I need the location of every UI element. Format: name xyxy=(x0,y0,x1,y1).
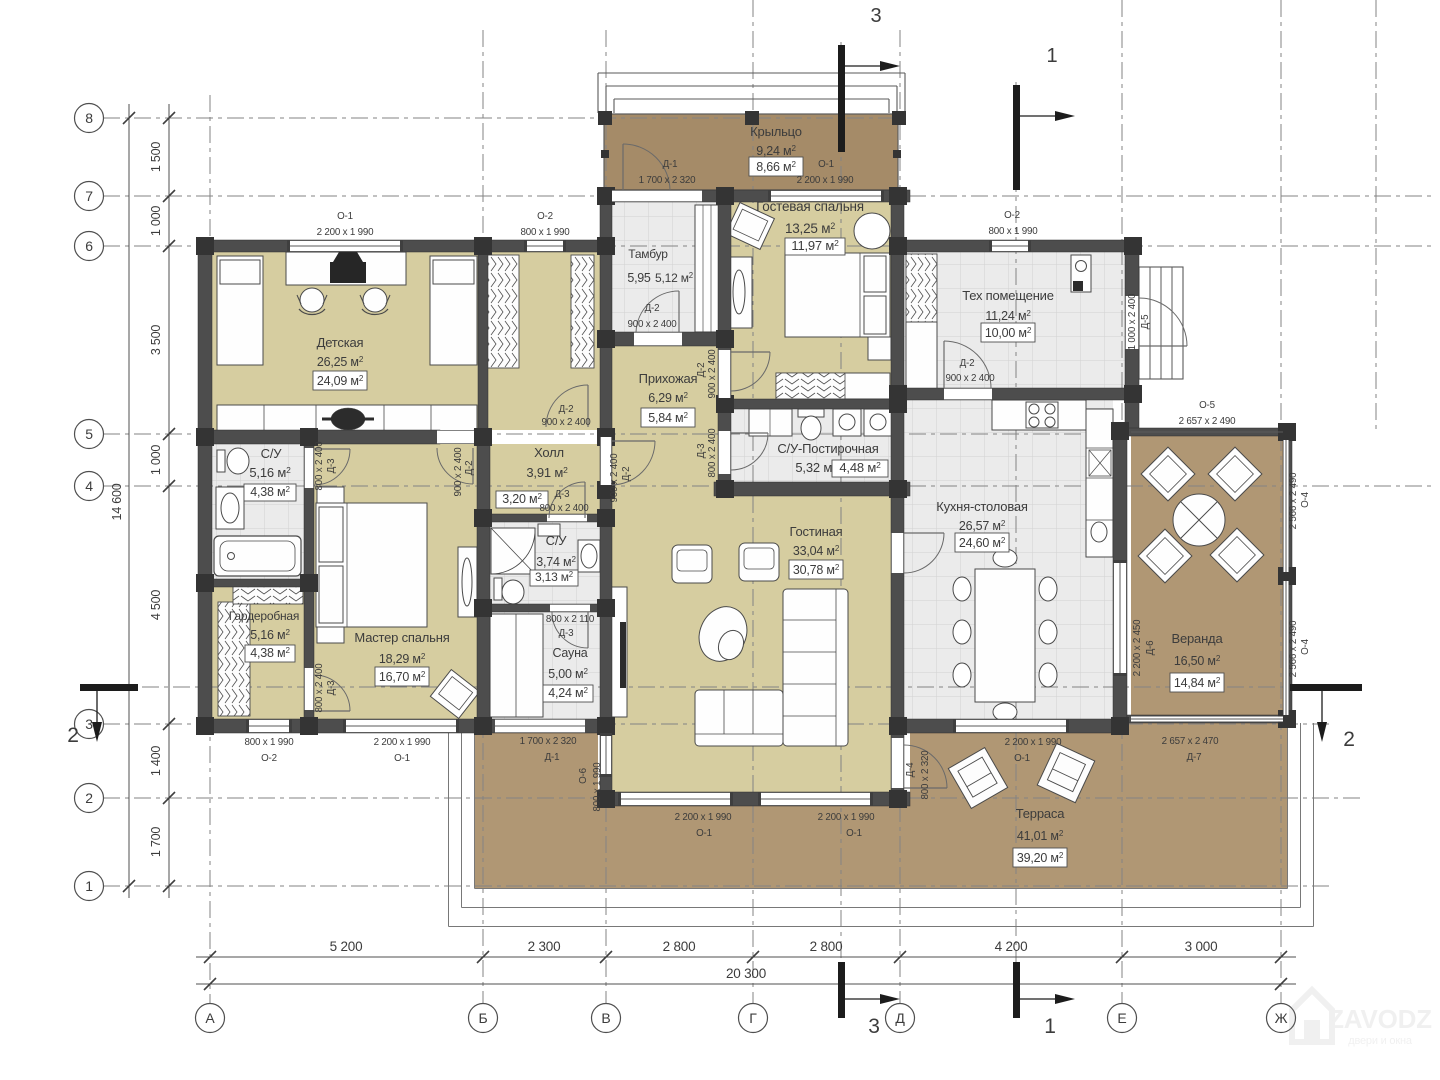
svg-text:800 x 2 400: 800 x 2 400 xyxy=(539,503,589,514)
svg-text:Д-6: Д-6 xyxy=(1145,640,1156,655)
svg-text:2 657 x 2 470: 2 657 x 2 470 xyxy=(1162,736,1220,747)
svg-text:800 x 2 400: 800 x 2 400 xyxy=(707,428,718,478)
svg-text:Д-4: Д-4 xyxy=(905,762,916,777)
svg-text:5,32 м2: 5,32 м2 xyxy=(795,460,837,475)
svg-text:3,74 м2: 3,74 м2 xyxy=(536,555,576,569)
svg-text:2 657 x 2 490: 2 657 x 2 490 xyxy=(1179,416,1237,427)
svg-text:3: 3 xyxy=(871,5,882,27)
svg-text:двери и окна: двери и окна xyxy=(1348,1035,1413,1047)
svg-text:Гостиная: Гостиная xyxy=(790,524,843,539)
svg-text:3 000: 3 000 xyxy=(1185,939,1218,954)
svg-text:900 x 2 400: 900 x 2 400 xyxy=(609,453,620,503)
svg-text:900 x 2 400: 900 x 2 400 xyxy=(627,319,677,330)
svg-text:6,29 м2: 6,29 м2 xyxy=(648,391,688,405)
svg-text:Мастер спальня: Мастер спальня xyxy=(354,630,449,645)
svg-text:Тамбур: Тамбур xyxy=(628,247,668,261)
svg-text:О-6: О-6 xyxy=(578,767,589,783)
svg-text:Д-2: Д-2 xyxy=(464,461,475,476)
svg-text:О-4: О-4 xyxy=(1300,491,1311,507)
svg-text:30,78 м2: 30,78 м2 xyxy=(793,563,840,577)
svg-text:С/У: С/У xyxy=(261,446,283,461)
svg-text:1 400: 1 400 xyxy=(149,746,163,777)
svg-text:Д-3: Д-3 xyxy=(555,489,570,500)
svg-text:Д-2: Д-2 xyxy=(621,467,632,482)
svg-text:1 700 x 2 320: 1 700 x 2 320 xyxy=(520,736,578,747)
svg-text:Д-2: Д-2 xyxy=(559,404,574,415)
svg-text:5,00 м2: 5,00 м2 xyxy=(548,667,588,681)
svg-text:4,24 м2: 4,24 м2 xyxy=(548,686,588,700)
svg-text:2 200 x 1 990: 2 200 x 1 990 xyxy=(1005,737,1063,748)
svg-text:1 700: 1 700 xyxy=(149,827,163,858)
svg-text:Д-3: Д-3 xyxy=(559,628,574,639)
svg-text:4 200: 4 200 xyxy=(995,939,1028,954)
svg-text:8,66 м2: 8,66 м2 xyxy=(756,160,796,174)
svg-text:5 200: 5 200 xyxy=(330,939,363,954)
svg-text:20 300: 20 300 xyxy=(726,966,766,981)
svg-text:Г: Г xyxy=(749,1010,757,1026)
svg-text:2 800: 2 800 xyxy=(663,939,696,954)
svg-text:Д-1: Д-1 xyxy=(545,752,560,763)
svg-text:2 566 x 2 490: 2 566 x 2 490 xyxy=(1288,472,1299,530)
svg-text:Кухня-столовая: Кухня-столовая xyxy=(936,499,1028,514)
svg-text:Гостевая спальня: Гостевая спальня xyxy=(756,199,864,214)
svg-text:800 x 1 990: 800 x 1 990 xyxy=(988,226,1038,237)
svg-text:4,48 м2: 4,48 м2 xyxy=(839,460,881,475)
svg-text:3,13 м2: 3,13 м2 xyxy=(535,570,573,584)
svg-text:800 x 1 990: 800 x 1 990 xyxy=(592,762,603,812)
svg-text:Прихожая: Прихожая xyxy=(639,371,698,386)
svg-text:41,01 м2: 41,01 м2 xyxy=(1017,829,1064,843)
svg-text:2 300: 2 300 xyxy=(528,939,561,954)
svg-text:24,60 м2: 24,60 м2 xyxy=(959,536,1006,550)
svg-text:5,16 м2: 5,16 м2 xyxy=(250,628,290,642)
svg-text:Д-3: Д-3 xyxy=(326,680,337,695)
svg-text:Д-2: Д-2 xyxy=(960,358,975,369)
svg-text:Тех помещение: Тех помещение xyxy=(962,288,1054,303)
svg-text:8: 8 xyxy=(85,110,93,126)
svg-text:5,16 м2: 5,16 м2 xyxy=(249,465,291,480)
svg-text:26,57 м2: 26,57 м2 xyxy=(959,519,1006,533)
svg-text:1: 1 xyxy=(1047,45,1058,67)
svg-text:С/У: С/У xyxy=(546,533,568,548)
svg-text:14 600: 14 600 xyxy=(110,483,124,520)
svg-text:24,09 м2: 24,09 м2 xyxy=(317,374,364,388)
svg-text:5,95: 5,95 xyxy=(627,271,650,285)
svg-text:33,04 м2: 33,04 м2 xyxy=(793,544,840,558)
svg-text:1: 1 xyxy=(1044,1015,1055,1038)
svg-text:Д-2: Д-2 xyxy=(645,303,660,314)
svg-text:16,50 м2: 16,50 м2 xyxy=(1174,654,1221,668)
svg-text:800 x 2 320: 800 x 2 320 xyxy=(920,750,931,800)
svg-text:Веранда: Веранда xyxy=(1172,631,1224,646)
svg-text:2: 2 xyxy=(1343,728,1354,751)
svg-text:А: А xyxy=(205,1010,215,1026)
svg-text:16,70 м2: 16,70 м2 xyxy=(379,670,426,684)
svg-text:Д-1: Д-1 xyxy=(663,159,678,170)
svg-text:39,20 м2: 39,20 м2 xyxy=(1017,851,1064,865)
svg-text:4: 4 xyxy=(85,478,93,494)
svg-text:2 200 x 1 990: 2 200 x 1 990 xyxy=(675,812,733,823)
svg-text:О-4: О-4 xyxy=(1300,638,1311,654)
svg-text:Холл: Холл xyxy=(534,445,564,460)
svg-text:800 x 1 990: 800 x 1 990 xyxy=(244,737,294,748)
svg-text:О-1: О-1 xyxy=(1014,753,1030,764)
svg-text:2 566 x 2 490: 2 566 x 2 490 xyxy=(1288,620,1299,678)
svg-text:Д-7: Д-7 xyxy=(1187,752,1202,763)
svg-text:1 500: 1 500 xyxy=(149,142,163,173)
svg-text:О-5: О-5 xyxy=(1199,400,1215,411)
svg-text:О-2: О-2 xyxy=(261,753,277,764)
svg-text:Д-5: Д-5 xyxy=(1140,314,1151,329)
svg-text:О-1: О-1 xyxy=(818,159,834,170)
svg-text:2 200 x 1 990: 2 200 x 1 990 xyxy=(818,812,876,823)
svg-text:800 x 1 990: 800 x 1 990 xyxy=(520,227,570,238)
svg-text:О-1: О-1 xyxy=(696,828,712,839)
svg-text:С/У-Постирочная: С/У-Постирочная xyxy=(777,441,878,456)
svg-text:О-1: О-1 xyxy=(846,828,862,839)
svg-text:2: 2 xyxy=(67,724,78,747)
svg-text:11,97 м2: 11,97 м2 xyxy=(791,238,839,253)
svg-text:900 x 2 400: 900 x 2 400 xyxy=(945,373,995,384)
svg-text:10,00 м2: 10,00 м2 xyxy=(985,326,1032,340)
svg-text:4,38 м2: 4,38 м2 xyxy=(250,485,290,499)
svg-text:3 500: 3 500 xyxy=(149,325,163,356)
svg-text:900 x 2 400: 900 x 2 400 xyxy=(707,349,718,399)
svg-text:6: 6 xyxy=(85,238,93,254)
svg-text:9,24 м2: 9,24 м2 xyxy=(756,144,796,158)
svg-text:5,84 м2: 5,84 м2 xyxy=(648,411,688,425)
svg-text:13,25 м2: 13,25 м2 xyxy=(785,221,835,236)
svg-text:5: 5 xyxy=(85,426,93,442)
svg-text:2 200 x 2 450: 2 200 x 2 450 xyxy=(1132,619,1143,677)
svg-text:18,29 м2: 18,29 м2 xyxy=(379,652,426,666)
svg-text:7: 7 xyxy=(85,188,93,204)
svg-text:О-1: О-1 xyxy=(394,753,410,764)
svg-text:4,38 м2: 4,38 м2 xyxy=(250,646,290,660)
svg-text:Терраса: Терраса xyxy=(1016,806,1065,821)
svg-text:800 x 2 110: 800 x 2 110 xyxy=(546,614,595,625)
svg-text:4 500: 4 500 xyxy=(149,590,163,621)
svg-text:1 700 x 2 320: 1 700 x 2 320 xyxy=(639,175,697,186)
svg-text:2 200 x 1 990: 2 200 x 1 990 xyxy=(797,175,855,186)
svg-text:5,12 м2: 5,12 м2 xyxy=(655,271,693,285)
svg-text:3,91 м2: 3,91 м2 xyxy=(526,465,568,480)
svg-text:3: 3 xyxy=(85,716,93,732)
svg-text:1: 1 xyxy=(85,878,93,894)
svg-text:2 800: 2 800 xyxy=(810,939,843,954)
svg-text:Детская: Детская xyxy=(317,335,364,350)
svg-text:2 200 x 1 990: 2 200 x 1 990 xyxy=(317,227,375,238)
svg-text:3,20 м2: 3,20 м2 xyxy=(502,492,542,506)
svg-text:Е: Е xyxy=(1117,1010,1126,1026)
svg-text:1 000: 1 000 xyxy=(149,445,163,476)
svg-text:ZAVODZ: ZAVODZ xyxy=(1328,1004,1432,1034)
svg-text:Д: Д xyxy=(895,1010,905,1026)
svg-text:800 x 2 400: 800 x 2 400 xyxy=(314,441,325,491)
svg-text:О-1: О-1 xyxy=(337,211,353,222)
svg-text:2: 2 xyxy=(85,790,93,806)
svg-text:О-2: О-2 xyxy=(537,211,553,222)
svg-text:Б: Б xyxy=(479,1010,488,1026)
svg-text:Крыльцо: Крыльцо xyxy=(750,124,802,139)
svg-text:Д-2: Д-2 xyxy=(696,363,707,378)
svg-text:Гардеробная: Гардеробная xyxy=(229,609,299,623)
svg-text:800 x 2 400: 800 x 2 400 xyxy=(314,663,325,713)
svg-text:26,25 м2: 26,25 м2 xyxy=(317,355,364,369)
svg-text:В: В xyxy=(601,1010,610,1026)
svg-text:Сауна: Сауна xyxy=(552,646,587,660)
svg-text:1 000 x 2 400: 1 000 x 2 400 xyxy=(1127,293,1138,351)
svg-text:О-2: О-2 xyxy=(1004,210,1020,221)
svg-text:3: 3 xyxy=(868,1015,879,1038)
svg-text:14,84 м2: 14,84 м2 xyxy=(1174,676,1221,690)
svg-text:Д-3: Д-3 xyxy=(696,443,707,458)
svg-text:11,24 м2: 11,24 м2 xyxy=(985,309,1031,323)
svg-text:Ж: Ж xyxy=(1275,1010,1288,1026)
svg-text:900 x 2 400: 900 x 2 400 xyxy=(541,417,591,428)
svg-text:900 x 2 400: 900 x 2 400 xyxy=(453,447,464,497)
svg-text:2 200 x 1 990: 2 200 x 1 990 xyxy=(374,737,432,748)
svg-text:Д-3: Д-3 xyxy=(326,458,337,473)
svg-text:1 000: 1 000 xyxy=(149,206,163,237)
